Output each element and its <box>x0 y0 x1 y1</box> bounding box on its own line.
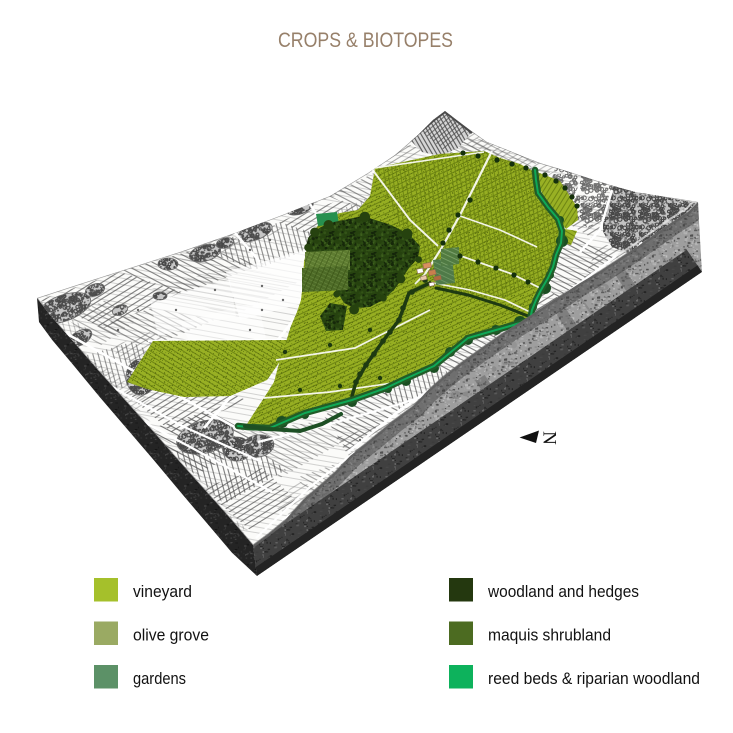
svg-text:vineyard: vineyard <box>133 583 192 601</box>
svg-text:CROPS & BIOTOPES: CROPS & BIOTOPES <box>278 28 453 52</box>
svg-text:maquis shrubland: maquis shrubland <box>488 627 611 645</box>
svg-text:woodland and hedges: woodland and hedges <box>487 583 639 601</box>
svg-text:gardens: gardens <box>133 670 186 688</box>
svg-text:olive grove: olive grove <box>133 627 209 645</box>
svg-text:N: N <box>539 431 560 445</box>
svg-text:reed beds & riparian woodland: reed beds & riparian woodland <box>488 670 700 688</box>
